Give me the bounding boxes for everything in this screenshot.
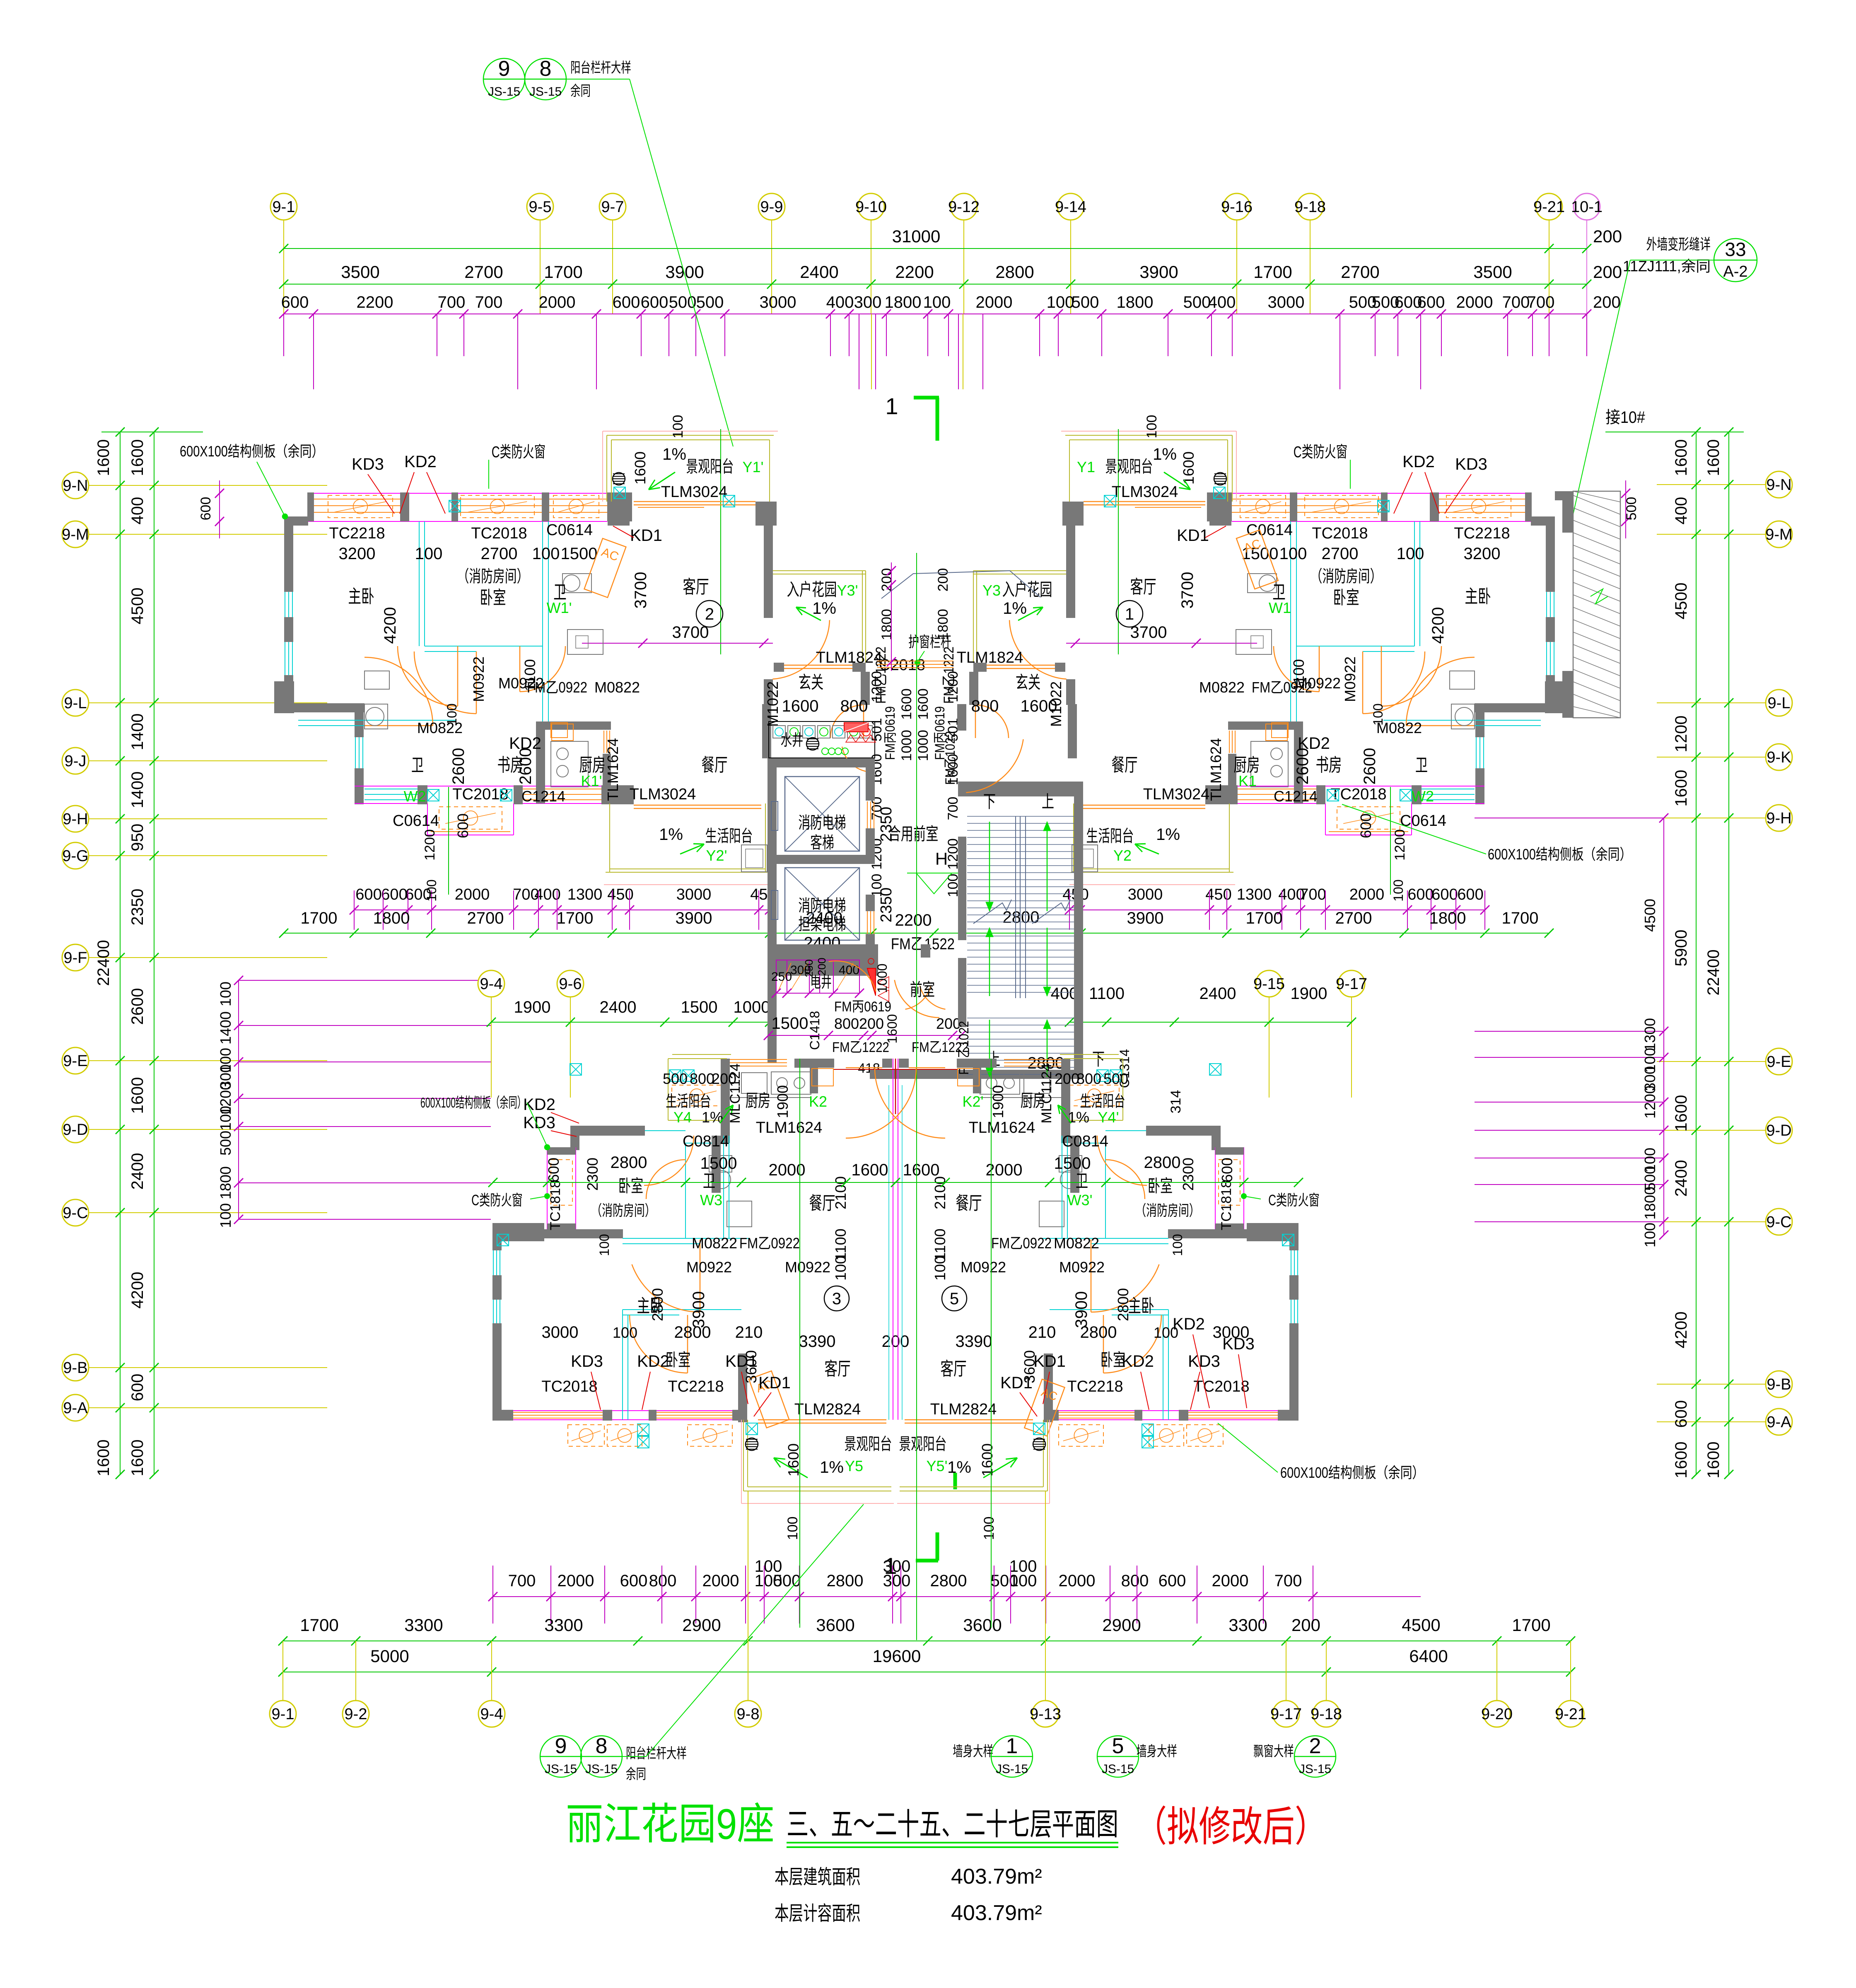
svg-text:KD2: KD2: [1173, 1315, 1205, 1333]
svg-text:2: 2: [1309, 1734, 1321, 1758]
svg-text:200: 200: [1593, 262, 1622, 282]
svg-text:600: 600: [641, 293, 669, 311]
svg-text:TC2018: TC2018: [1312, 525, 1368, 542]
svg-text:9-M: 9-M: [62, 526, 89, 543]
svg-text:KD3: KD3: [1222, 1335, 1255, 1353]
svg-text:1900: 1900: [514, 998, 551, 1016]
svg-text:TC1818: TC1818: [548, 1180, 563, 1230]
svg-text:210: 210: [1028, 1323, 1056, 1341]
svg-text:入户花园: 入户花园: [1002, 580, 1052, 599]
svg-text:9-14: 9-14: [1055, 198, 1086, 216]
svg-text:4500: 4500: [1641, 899, 1658, 932]
svg-text:2400: 2400: [800, 262, 838, 282]
svg-text:W2: W2: [1412, 788, 1434, 805]
svg-text:1800: 1800: [879, 609, 895, 640]
svg-text:下: 下: [1092, 1049, 1105, 1069]
svg-text:玄关: 玄关: [799, 673, 823, 692]
svg-text:2200: 2200: [357, 293, 393, 311]
svg-text:KD2: KD2: [404, 453, 437, 471]
svg-text:2900: 2900: [682, 1615, 721, 1635]
svg-text:JS-15: JS-15: [1299, 1762, 1331, 1776]
svg-text:3300: 3300: [544, 1615, 583, 1635]
svg-text:TLM1624: TLM1624: [756, 1119, 823, 1136]
svg-text:314: 314: [1168, 1090, 1184, 1114]
svg-text:9-F: 9-F: [64, 949, 87, 967]
svg-text:100: 100: [1641, 1223, 1658, 1247]
svg-text:2600: 2600: [449, 748, 468, 785]
svg-text:M0922: M0922: [785, 1259, 830, 1276]
svg-text:210: 210: [735, 1323, 763, 1341]
svg-text:TLM3024: TLM3024: [630, 786, 696, 803]
svg-text:1000: 1000: [875, 963, 890, 993]
svg-text:8: 8: [596, 1734, 608, 1758]
svg-text:200: 200: [1291, 1615, 1320, 1635]
svg-text:19600: 19600: [873, 1646, 921, 1666]
svg-text:33: 33: [1725, 239, 1746, 260]
svg-text:TLM1824: TLM1824: [957, 649, 1023, 666]
svg-text:600: 600: [454, 813, 471, 838]
svg-text:本层计容面积: 本层计容面积: [775, 1903, 860, 1925]
svg-text:3700: 3700: [1178, 572, 1197, 609]
svg-text:1600: 1600: [1672, 1442, 1690, 1479]
svg-text:C类防火窗: C类防火窗: [471, 1192, 523, 1209]
svg-text:K2': K2': [963, 1093, 984, 1110]
svg-text:9-6: 9-6: [559, 975, 582, 993]
svg-text:500: 500: [696, 293, 724, 311]
svg-text:9: 9: [555, 1734, 567, 1758]
svg-text:余同: 余同: [626, 1766, 646, 1782]
svg-text:100: 100: [217, 1203, 234, 1228]
svg-text:TC2218: TC2218: [1067, 1378, 1123, 1395]
svg-text:600X100结构侧板（余同）: 600X100结构侧板（余同）: [420, 1095, 526, 1111]
svg-text:W1': W1': [547, 599, 572, 616]
svg-text:KD2: KD2: [1402, 453, 1435, 471]
svg-text:卫: 卫: [411, 755, 424, 775]
svg-text:10-1: 10-1: [1571, 198, 1603, 216]
svg-text:W1: W1: [1269, 599, 1291, 616]
svg-text:客厅: 客厅: [683, 577, 709, 597]
svg-text:9-H: 9-H: [63, 811, 88, 828]
svg-text:墙身大样: 墙身大样: [953, 1744, 993, 1759]
svg-text:TC2018: TC2018: [541, 1378, 597, 1395]
svg-text:9-N: 9-N: [63, 477, 88, 495]
svg-text:C类防火窗: C类防火窗: [1268, 1192, 1320, 1209]
svg-text:主卧: 主卧: [1128, 1296, 1154, 1316]
svg-text:9-C: 9-C: [1766, 1214, 1791, 1231]
svg-text:100: 100: [532, 545, 560, 563]
svg-text:MLC1124: MLC1124: [727, 1064, 743, 1124]
svg-text:2800: 2800: [1144, 1153, 1181, 1172]
svg-text:1700: 1700: [1246, 909, 1283, 927]
svg-text:800: 800: [840, 697, 868, 715]
svg-text:700: 700: [1274, 1572, 1302, 1590]
svg-text:1200: 1200: [945, 671, 961, 702]
svg-text:400: 400: [826, 293, 854, 311]
svg-text:TC1818: TC1818: [1219, 1180, 1234, 1230]
svg-text:1600: 1600: [1704, 1442, 1723, 1479]
svg-text:TLM1624: TLM1624: [969, 1119, 1035, 1136]
svg-text:2700: 2700: [464, 262, 503, 282]
svg-text:200: 200: [882, 1332, 910, 1351]
svg-text:KD1: KD1: [758, 1374, 791, 1392]
svg-text:三、五～二十五、二十七层平面图: 三、五～二十五、二十七层平面图: [787, 1807, 1118, 1841]
svg-text:2600: 2600: [516, 748, 535, 785]
svg-text:100: 100: [755, 1557, 782, 1575]
svg-text:TC2218: TC2218: [668, 1378, 724, 1395]
svg-text:Y4: Y4: [673, 1109, 692, 1126]
svg-text:余同: 余同: [570, 83, 591, 99]
svg-text:2400: 2400: [600, 998, 637, 1016]
svg-text:500: 500: [663, 1070, 688, 1087]
svg-text:3700: 3700: [632, 572, 650, 609]
svg-text:600: 600: [381, 886, 407, 903]
svg-text:9-2: 9-2: [345, 1706, 367, 1723]
svg-text:（消防房间）: （消防房间）: [457, 567, 529, 586]
svg-text:2700: 2700: [481, 545, 518, 563]
svg-text:（消防房间）: （消防房间）: [1311, 567, 1382, 586]
svg-text:1000: 1000: [734, 998, 770, 1016]
svg-text:2800: 2800: [1080, 1323, 1117, 1341]
svg-text:600: 600: [1219, 1158, 1236, 1182]
svg-text:1600: 1600: [1672, 770, 1690, 807]
svg-text:5000: 5000: [370, 1646, 409, 1666]
svg-text:客厅: 客厅: [1130, 577, 1156, 597]
svg-text:KD3: KD3: [571, 1352, 603, 1370]
svg-text:1900: 1900: [1291, 984, 1327, 1003]
svg-text:墙身大样: 墙身大样: [1137, 1744, 1177, 1759]
svg-text:3900: 3900: [690, 1291, 708, 1328]
svg-text:1700: 1700: [301, 909, 338, 927]
svg-text:9-M: 9-M: [1765, 526, 1792, 543]
svg-text:2700: 2700: [1341, 262, 1379, 282]
svg-text:FM乙0922: FM乙0922: [527, 679, 587, 696]
svg-text:1%: 1%: [947, 1458, 971, 1477]
svg-text:KD2: KD2: [1122, 1352, 1154, 1370]
svg-text:JS-15: JS-15: [545, 1762, 577, 1776]
svg-text:9-1: 9-1: [272, 1706, 294, 1723]
svg-text:600: 600: [1457, 886, 1483, 903]
svg-text:9-17: 9-17: [1336, 975, 1367, 993]
svg-text:3600: 3600: [963, 1615, 1002, 1635]
svg-text:600: 600: [1672, 1400, 1690, 1428]
svg-text:1%: 1%: [1153, 445, 1177, 463]
svg-text:1600: 1600: [785, 1443, 802, 1477]
svg-text:100: 100: [217, 982, 234, 1006]
svg-text:9-B: 9-B: [63, 1359, 87, 1377]
svg-text:1800: 1800: [885, 293, 922, 311]
svg-text:KD2: KD2: [637, 1352, 669, 1370]
svg-text:2800: 2800: [674, 1323, 711, 1341]
svg-text:玄关: 玄关: [1016, 673, 1040, 692]
svg-text:JS-15: JS-15: [996, 1762, 1028, 1776]
svg-text:1600: 1600: [782, 697, 819, 715]
svg-text:1300: 1300: [1641, 1018, 1658, 1051]
svg-text:1%: 1%: [662, 445, 686, 463]
svg-text:前室: 前室: [910, 980, 935, 999]
svg-text:1600: 1600: [128, 1440, 147, 1477]
svg-text:卫: 卫: [703, 1171, 715, 1191]
svg-text:100: 100: [1144, 415, 1160, 439]
svg-text:2400: 2400: [128, 1153, 147, 1190]
svg-text:9-J: 9-J: [65, 753, 87, 770]
svg-text:2800: 2800: [930, 1572, 967, 1590]
svg-text:景观阳台: 景观阳台: [686, 458, 734, 476]
svg-text:9-18: 9-18: [1294, 198, 1326, 216]
svg-text:8: 8: [540, 57, 552, 81]
svg-text:3900: 3900: [1139, 262, 1178, 282]
svg-text:3000: 3000: [676, 886, 712, 903]
svg-text:9-A: 9-A: [63, 1399, 88, 1417]
svg-text:403.79m²: 403.79m²: [951, 1865, 1042, 1889]
svg-text:3500: 3500: [1473, 262, 1512, 282]
svg-text:FM乙1222: FM乙1222: [832, 1040, 889, 1055]
svg-text:6400: 6400: [1409, 1646, 1448, 1666]
svg-text:C0814: C0814: [683, 1133, 729, 1150]
svg-text:1600: 1600: [128, 439, 147, 476]
svg-text:生活阳台: 生活阳台: [1080, 1093, 1125, 1110]
svg-text:C0614: C0614: [393, 812, 439, 830]
svg-text:1200: 1200: [869, 671, 885, 702]
svg-text:9-N: 9-N: [1766, 476, 1791, 494]
svg-text:2: 2: [705, 605, 714, 623]
svg-text:TC2018: TC2018: [471, 525, 527, 542]
svg-text:阳台栏杆大样: 阳台栏杆大样: [626, 1746, 687, 1761]
svg-text:消防电梯: 消防电梯: [798, 814, 846, 832]
svg-text:700: 700: [508, 1572, 536, 1590]
svg-text:2000: 2000: [539, 293, 576, 311]
svg-text:22400: 22400: [94, 940, 113, 986]
svg-text:餐厅: 餐厅: [956, 1193, 982, 1214]
svg-text:M1022: M1022: [1047, 681, 1064, 727]
svg-text:500: 500: [1072, 293, 1099, 311]
svg-text:9-4: 9-4: [480, 1706, 503, 1723]
svg-text:C0614: C0614: [546, 521, 593, 539]
svg-text:3: 3: [832, 1290, 841, 1308]
svg-text:300: 300: [854, 293, 882, 311]
svg-text:250: 250: [771, 970, 792, 984]
svg-text:卧室: 卧室: [1101, 1350, 1125, 1370]
svg-text:M0822: M0822: [594, 679, 640, 696]
svg-text:K2: K2: [809, 1093, 827, 1110]
svg-text:担架电梯: 担架电梯: [798, 915, 846, 934]
svg-text:4500: 4500: [1402, 1615, 1440, 1635]
svg-text:景观阳台: 景观阳台: [899, 1435, 946, 1453]
svg-text:Y5': Y5': [927, 1457, 948, 1474]
svg-text:600: 600: [1357, 813, 1374, 838]
svg-text:100: 100: [785, 1517, 801, 1540]
svg-text:1000: 1000: [915, 730, 931, 761]
svg-text:2350: 2350: [128, 889, 147, 926]
svg-text:2800: 2800: [1003, 908, 1040, 926]
svg-text:TLM1624: TLM1624: [604, 738, 621, 801]
svg-text:3600: 3600: [816, 1615, 854, 1635]
svg-text:主卧: 主卧: [1465, 586, 1491, 607]
svg-text:3900: 3900: [676, 909, 712, 927]
svg-text:卧室: 卧室: [480, 588, 506, 608]
svg-text:3300: 3300: [404, 1615, 443, 1635]
svg-text:9-21: 9-21: [1533, 198, 1565, 216]
svg-text:生活阳台: 生活阳台: [1086, 827, 1134, 845]
svg-text:22400: 22400: [1704, 949, 1723, 995]
svg-text:600X100结构侧板（余同）: 600X100结构侧板（余同）: [1280, 1464, 1424, 1481]
svg-text:100: 100: [981, 1517, 997, 1540]
svg-text:800: 800: [834, 1015, 859, 1032]
svg-text:3500: 3500: [341, 262, 379, 282]
svg-text:100: 100: [1371, 703, 1385, 725]
svg-text:景观阳台: 景观阳台: [1105, 458, 1153, 476]
svg-text:Y3': Y3': [837, 582, 858, 599]
svg-text:9-20: 9-20: [1481, 1706, 1513, 1723]
svg-text:入户花园: 入户花园: [787, 580, 837, 599]
svg-text:600: 600: [1431, 886, 1458, 903]
svg-text:M0922: M0922: [686, 1259, 732, 1276]
svg-text:1600: 1600: [128, 1077, 147, 1114]
svg-text:400: 400: [128, 497, 147, 525]
svg-text:9-4: 9-4: [480, 975, 503, 993]
svg-text:100: 100: [597, 1234, 612, 1256]
svg-text:1300: 1300: [1237, 886, 1272, 903]
svg-text:1400: 1400: [128, 714, 147, 750]
svg-text:1600: 1600: [1180, 451, 1197, 485]
svg-text:M0922: M0922: [470, 656, 487, 702]
svg-text:600: 600: [1407, 886, 1434, 903]
svg-text:1: 1: [884, 1553, 897, 1579]
svg-text:1600: 1600: [899, 688, 915, 720]
svg-text:1900: 1900: [774, 1085, 791, 1118]
svg-text:2800: 2800: [995, 262, 1034, 282]
svg-text:TLM3024: TLM3024: [1112, 483, 1178, 501]
svg-text:合用前室: 合用前室: [888, 824, 939, 844]
svg-text:H: H: [935, 849, 948, 869]
svg-text:600: 600: [620, 1572, 648, 1590]
svg-text:9-L: 9-L: [64, 695, 87, 712]
svg-text:卧室: 卧室: [1148, 1176, 1173, 1196]
svg-text:TLM3024: TLM3024: [1143, 786, 1210, 803]
svg-text:600X100结构侧板（余同）: 600X100结构侧板（余同）: [180, 443, 323, 460]
svg-text:M0822: M0822: [1054, 1235, 1099, 1252]
svg-text:3000: 3000: [760, 293, 796, 311]
svg-text:2600: 2600: [1294, 748, 1312, 785]
svg-text:250: 250: [803, 959, 815, 977]
svg-text:3200: 3200: [1464, 545, 1501, 563]
svg-text:200: 200: [1593, 227, 1622, 246]
svg-text:卫: 卫: [1076, 1171, 1088, 1191]
svg-text:400: 400: [1208, 293, 1236, 311]
svg-text:1600: 1600: [1672, 439, 1690, 476]
svg-text:C类防火窗: C类防火窗: [1294, 444, 1348, 461]
svg-text:500: 500: [1183, 293, 1211, 311]
svg-text:9-K: 9-K: [1767, 749, 1791, 766]
svg-text:100: 100: [424, 879, 439, 901]
svg-text:2800: 2800: [827, 1572, 864, 1590]
svg-text:1600: 1600: [632, 451, 649, 485]
svg-text:700: 700: [945, 797, 961, 820]
svg-text:卧室: 卧室: [618, 1176, 643, 1196]
svg-text:景观阳台: 景观阳台: [844, 1435, 892, 1453]
svg-text:1600: 1600: [1704, 439, 1723, 476]
svg-text:飘窗大样: 飘窗大样: [1253, 1744, 1294, 1759]
svg-text:下: 下: [983, 792, 996, 811]
svg-text:厨房: 厨房: [746, 1091, 770, 1110]
svg-text:1: 1: [1125, 605, 1134, 623]
svg-text:生活阳台: 生活阳台: [666, 1093, 711, 1110]
svg-text:100: 100: [217, 1106, 234, 1131]
svg-text:KD1: KD1: [725, 1352, 758, 1370]
svg-text:9-15: 9-15: [1253, 975, 1285, 993]
svg-text:2000: 2000: [1059, 1572, 1096, 1590]
svg-text:TLM1824: TLM1824: [816, 649, 883, 666]
svg-text:餐厅: 餐厅: [701, 755, 727, 775]
svg-text:800: 800: [690, 1070, 714, 1087]
svg-text:403.79m²: 403.79m²: [951, 1901, 1042, 1925]
svg-text:2300: 2300: [1180, 1158, 1197, 1191]
svg-text:书房: 书房: [1315, 755, 1342, 775]
svg-text:3900: 3900: [1127, 909, 1164, 927]
svg-text:K1: K1: [1238, 772, 1257, 789]
svg-text:餐厅: 餐厅: [1111, 755, 1137, 775]
svg-text:1600: 1600: [979, 1443, 996, 1477]
svg-text:100: 100: [415, 545, 443, 563]
svg-text:1700: 1700: [1512, 1615, 1550, 1635]
svg-text:TLM1624: TLM1624: [1207, 738, 1224, 801]
svg-text:1800: 1800: [217, 1166, 234, 1199]
svg-text:9-A: 9-A: [1767, 1414, 1791, 1431]
svg-text:200: 200: [935, 568, 951, 592]
svg-text:600: 600: [128, 1374, 147, 1402]
svg-text:TLM3024: TLM3024: [661, 483, 728, 501]
svg-text:1200: 1200: [1672, 716, 1690, 753]
svg-text:9-D: 9-D: [1766, 1122, 1791, 1139]
svg-text:FM乙0922: FM乙0922: [1252, 679, 1312, 696]
svg-text:1700: 1700: [544, 262, 582, 282]
svg-text:1100: 1100: [1089, 984, 1125, 1003]
svg-text:M0922: M0922: [1059, 1259, 1105, 1276]
svg-text:2000: 2000: [976, 293, 1013, 311]
svg-text:1600: 1600: [852, 1161, 888, 1179]
svg-text:M0822: M0822: [692, 1235, 737, 1252]
svg-text:阳台栏杆大样: 阳台栏杆大样: [570, 60, 631, 76]
svg-text:丽江花园9座: 丽江花园9座: [566, 1800, 775, 1848]
svg-text:9-17: 9-17: [1270, 1706, 1302, 1723]
svg-text:400: 400: [1672, 497, 1690, 525]
svg-text:生活阳台: 生活阳台: [705, 827, 753, 845]
svg-text:200: 200: [1593, 293, 1621, 311]
svg-text:C1418: C1418: [807, 1011, 822, 1050]
svg-text:客厅: 客厅: [824, 1359, 850, 1379]
svg-text:500: 500: [1624, 497, 1639, 521]
svg-text:9-G: 9-G: [62, 847, 88, 865]
svg-text:TLM2824: TLM2824: [930, 1401, 997, 1418]
svg-text:9-1: 9-1: [273, 198, 295, 216]
svg-text:1%: 1%: [820, 1458, 844, 1477]
svg-text:600: 600: [1417, 293, 1445, 311]
svg-text:KD3: KD3: [352, 455, 384, 473]
svg-text:200: 200: [879, 568, 895, 592]
svg-text:KD1: KD1: [630, 526, 662, 545]
svg-text:3900: 3900: [665, 262, 704, 282]
svg-text:600: 600: [545, 1158, 562, 1182]
svg-text:600X100结构侧板（余同）: 600X100结构侧板（余同）: [1488, 846, 1632, 863]
svg-text:800: 800: [649, 1572, 677, 1590]
svg-text:外墙变形缝详: 外墙变形缝详: [1646, 236, 1711, 253]
svg-text:1700: 1700: [1502, 909, 1539, 927]
svg-text:上: 上: [1042, 792, 1054, 811]
svg-text:9-13: 9-13: [1030, 1706, 1061, 1723]
svg-text:31000: 31000: [892, 227, 941, 246]
svg-text:JS-15: JS-15: [488, 85, 520, 99]
svg-text:Y5: Y5: [845, 1457, 863, 1474]
svg-text:9-18: 9-18: [1311, 1706, 1342, 1723]
